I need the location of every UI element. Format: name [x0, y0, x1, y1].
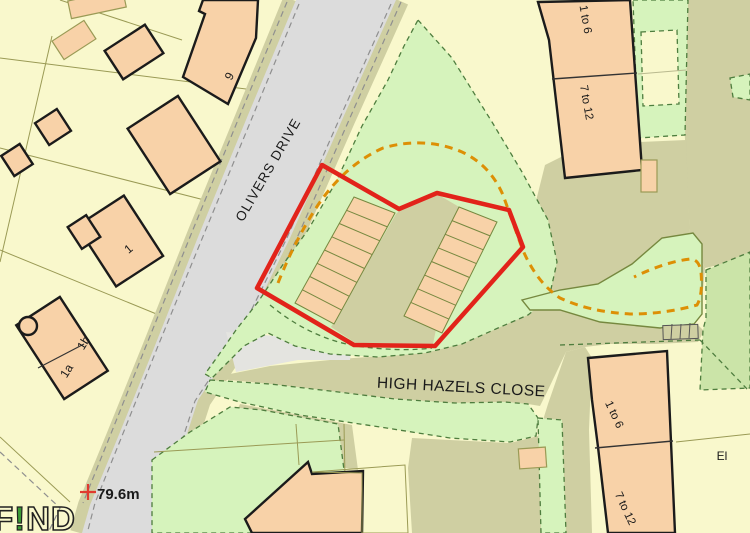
map-viewport: OLIVERS DRIVE HIGH HAZELS CLOSE 9 1 1a 1…	[0, 0, 750, 533]
green-column	[538, 418, 566, 533]
stall-strip	[663, 323, 698, 340]
map-canvas[interactable]: OLIVERS DRIVE HIGH HAZELS CLOSE 9 1 1a 1…	[0, 0, 750, 533]
label-substation: El	[717, 449, 728, 463]
find-watermark-logo: F!ND	[0, 500, 76, 533]
green-blob-road	[730, 74, 750, 100]
yellow-patch-topright	[641, 30, 679, 106]
green-dark-wedge	[700, 252, 750, 390]
benchmark-height-label: 79.6m	[97, 486, 140, 503]
